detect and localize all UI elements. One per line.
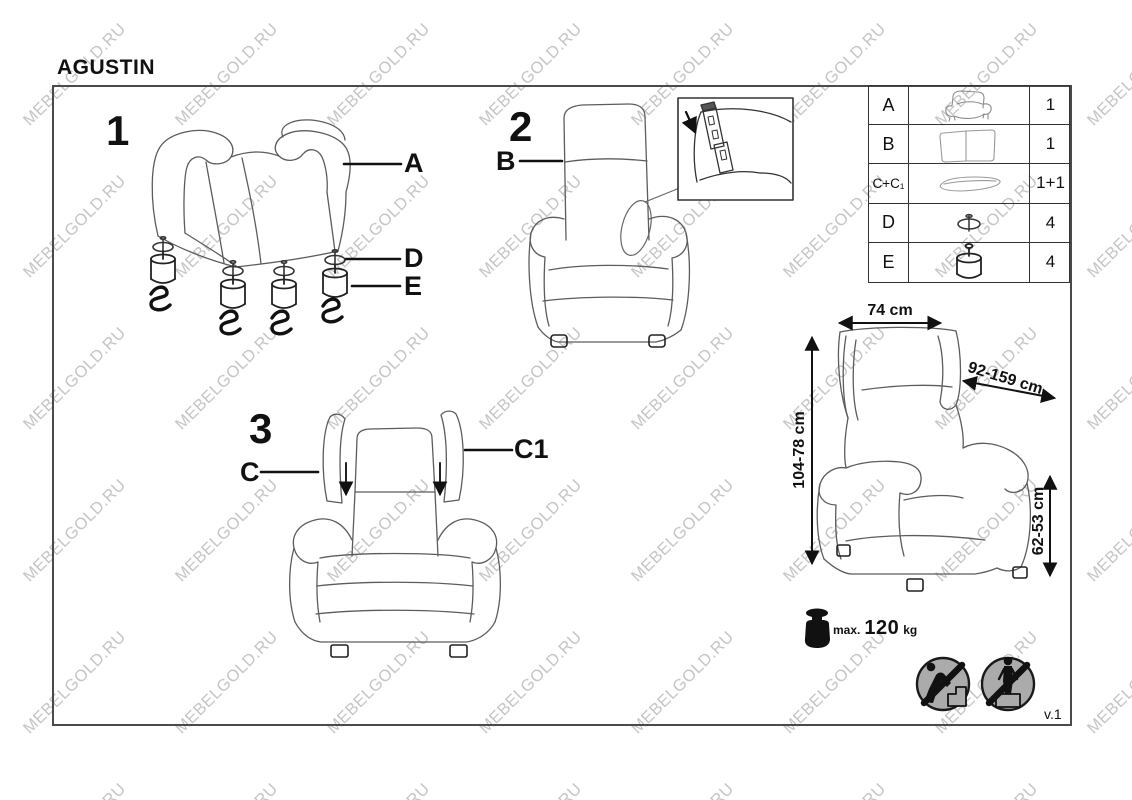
watermark-text: MEBELGOLD.RU <box>628 780 738 800</box>
table-part-icon-a <box>909 86 1030 125</box>
product-title: AGUSTIN <box>57 56 155 80</box>
weight-limit: max. 120 kg <box>833 617 917 640</box>
table-part-name: C+C₁ <box>869 164 909 203</box>
table-part-icon-c <box>909 164 1030 203</box>
watermark-text: MEBELGOLD.RU <box>324 780 434 800</box>
table-part-qty: 1 <box>1030 125 1071 164</box>
dimension-height: 104-78 cm <box>791 405 809 495</box>
watermark-text: MEBELGOLD.RU <box>932 780 1042 800</box>
label-part-a: A <box>404 150 424 177</box>
watermark-text: MEBELGOLD.RU <box>1084 628 1132 738</box>
label-part-c: C <box>240 459 260 486</box>
weight-value: 120 <box>864 617 899 640</box>
watermark-text: MEBELGOLD.RU <box>1084 780 1132 800</box>
watermark-text: MEBELGOLD.RU <box>1084 172 1132 282</box>
watermark-text: MEBELGOLD.RU <box>780 780 890 800</box>
table-part-qty: 4 <box>1030 243 1071 282</box>
table-part-name: E <box>869 243 909 282</box>
table-part-qty: 1+1 <box>1030 164 1071 203</box>
version-label: v.1 <box>1044 706 1062 722</box>
watermark-text: MEBELGOLD.RU <box>1084 324 1132 434</box>
table-part-name: D <box>869 204 909 243</box>
watermark-text: MEBELGOLD.RU <box>476 780 586 800</box>
table-part-name: A <box>869 86 909 125</box>
table-part-qty: 4 <box>1030 204 1071 243</box>
step-2-number: 2 <box>509 106 532 148</box>
dimension-seat-height: 62-53 cm <box>1030 476 1048 566</box>
watermark-text: MEBELGOLD.RU <box>20 780 130 800</box>
label-part-c1: C1 <box>514 436 549 463</box>
step-1-number: 1 <box>106 110 129 152</box>
table-part-icon-d <box>909 204 1030 243</box>
table-part-name: B <box>869 125 909 164</box>
weight-prefix: max. <box>833 623 860 637</box>
label-part-b: B <box>496 148 516 175</box>
label-part-e: E <box>404 273 422 300</box>
parts-table: A 1 B 1 C+C₁ 1+1 D 4 E 4 <box>868 85 1070 283</box>
step-3-number: 3 <box>249 408 272 450</box>
dimension-width: 74 cm <box>845 302 935 320</box>
watermark-text: MEBELGOLD.RU <box>1084 20 1132 130</box>
table-part-icon-b <box>909 125 1030 164</box>
watermark-text: MEBELGOLD.RU <box>1084 476 1132 586</box>
watermark-text: MEBELGOLD.RU <box>172 780 282 800</box>
label-part-d: D <box>404 245 424 272</box>
instruction-sheet: MEBELGOLD.RUMEBELGOLD.RUMEBELGOLD.RUMEBE… <box>0 0 1132 800</box>
table-part-icon-e <box>909 243 1030 282</box>
weight-unit: kg <box>903 623 917 637</box>
table-part-qty: 1 <box>1030 86 1071 125</box>
